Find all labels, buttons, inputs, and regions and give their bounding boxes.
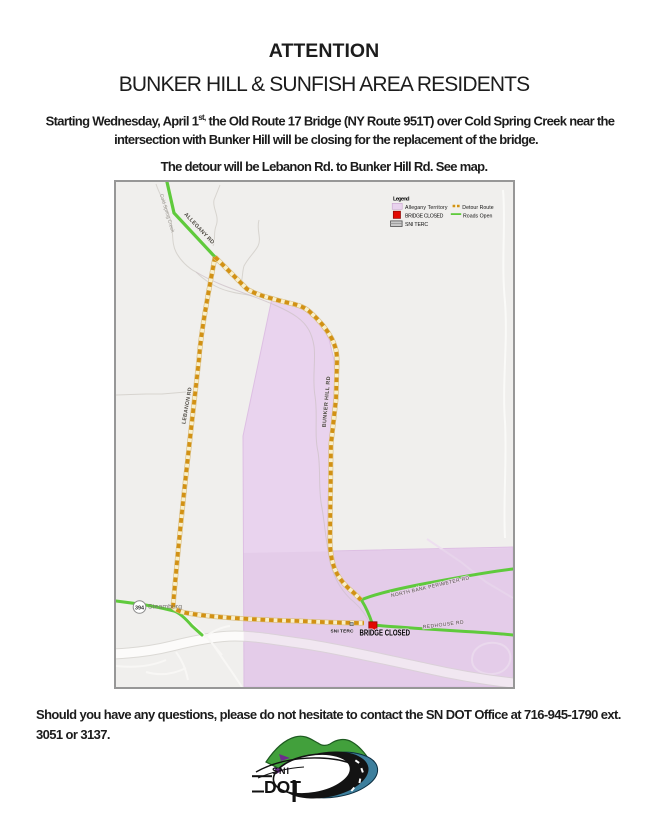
svg-text:Detour Route: Detour Route (462, 205, 493, 211)
svg-text:394: 394 (135, 605, 144, 611)
svg-text:Steamburg: Steamburg (148, 604, 182, 611)
svg-text:Legend: Legend (393, 197, 410, 203)
svg-text:Roads Open: Roads Open (463, 213, 493, 219)
svg-text:SNI: SNI (272, 766, 290, 776)
svg-text:SNI TERC: SNI TERC (405, 222, 428, 228)
svg-text:BRIDGE CLOSED: BRIDGE CLOSED (360, 629, 411, 638)
svg-text:BRIDGE CLOSED: BRIDGE CLOSED (405, 213, 444, 219)
svg-text:Allegany Territory: Allegany Territory (405, 205, 448, 211)
svg-text:SNI TERC: SNI TERC (331, 629, 354, 635)
